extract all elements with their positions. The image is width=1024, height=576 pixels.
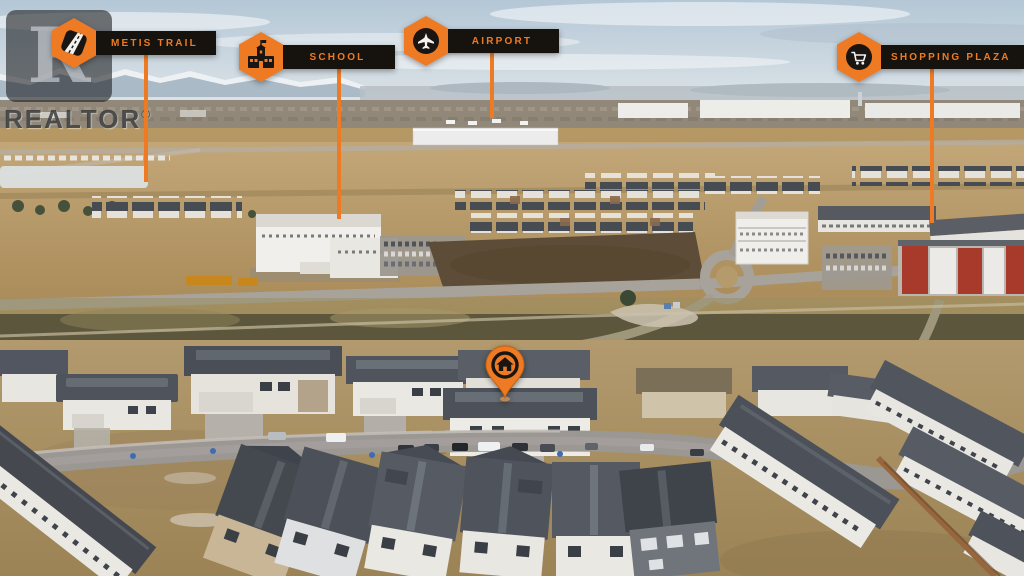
dark-sided-house [619,461,722,576]
marker-badge-metis-trail: METIS TRAIL [51,17,216,69]
marker-label: SHOPPING PLAZA [891,52,1011,63]
realtor-wordmark: REALTOR® [4,104,152,135]
property-home-pin [483,344,527,402]
airplane-icon [403,15,449,67]
shopping-plaza-pointer-line [930,68,934,223]
shopping-cart-icon [836,31,882,83]
aerial-listing-photo: R REALTOR® METIS TRAIL [0,0,1024,576]
aerial-photo [0,0,1024,576]
red-building [902,246,928,294]
marker-badge-shopping-plaza: SHOPPING PLAZA [836,31,1024,83]
road-icon [51,17,97,69]
marker-label: METIS TRAIL [111,38,198,49]
marker-label: SCHOOL [310,52,366,63]
marker-label-bar: AIRPORT [441,29,559,53]
school-building-icon [238,31,284,83]
pond [0,166,148,188]
marker-badge-airport: AIRPORT [403,15,559,67]
marker-label-bar: SHOPPING PLAZA [874,45,1024,69]
marker-label: AIRPORT [472,36,532,47]
metis-trail-pointer-line [144,54,148,182]
condo-building [736,212,808,264]
marker-label-bar: METIS TRAIL [89,31,216,55]
tree [620,290,636,306]
school-pointer-line [337,69,341,219]
marker-label-bar: SCHOOL [276,45,395,69]
shopping-plaza-buildings [818,206,1024,296]
home-icon [483,344,527,402]
marker-badge-school: SCHOOL [238,31,395,83]
